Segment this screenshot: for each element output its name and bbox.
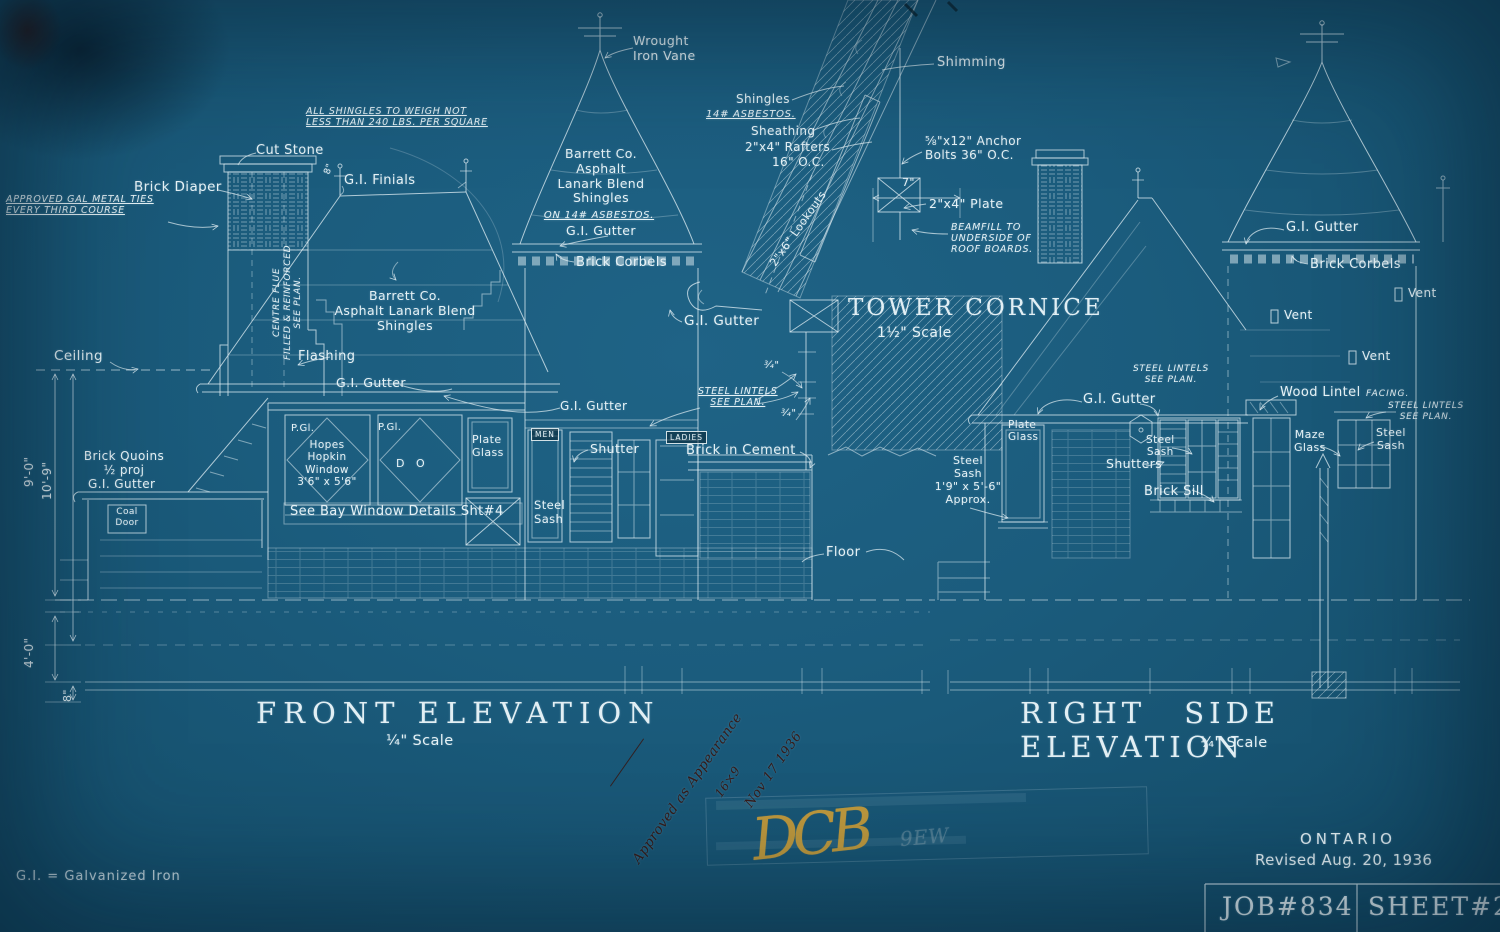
note-centre-flue: CENTRE FLUE FILLED & REINFORCED SEE PLAN… <box>272 245 304 360</box>
label-barrett-main: Barrett Co. Asphalt Lanark Blend Shingle… <box>315 289 495 333</box>
note-steel-lintels-right-a: STEEL LINTELS SEE PLAN. <box>1133 364 1209 385</box>
right-elevation-title: RIGHT SIDE ELEVATION <box>1020 696 1500 764</box>
title-block-job: JOB#834 <box>1222 892 1354 922</box>
label-brick-sill: Brick Sill <box>1144 484 1204 499</box>
label-steel-sash-men: Steel Sash <box>534 499 565 526</box>
note-on-asbestos: ON 14# ASBESTOS. <box>540 210 658 222</box>
label-gi-gutter-tower-right: G.I. Gutter <box>1286 220 1359 235</box>
label-shutters-right: Shutters <box>1106 457 1162 472</box>
title-block-sheet: SHEET#2 <box>1368 892 1500 922</box>
initials-faint: 9EW <box>899 824 950 852</box>
note-shingle-weight: ALL SHINGLES TO WEIGH NOT LESS THAN 240 … <box>306 106 488 128</box>
label-wrought-iron-vane: Wrought Iron Vane <box>633 34 696 64</box>
note-steel-lintels-right-b: STEEL LINTELS SEE PLAN. <box>1388 401 1464 422</box>
note-bay-window: See Bay Window Details Sht#4 <box>290 504 504 519</box>
label-pgl-2: P.Gl. <box>378 422 401 434</box>
label-vent-3: Vent <box>1362 349 1391 363</box>
label-shingles: Shingles <box>736 92 790 106</box>
dim-three-quarter-b: ¾" <box>781 408 797 420</box>
label-gi-gutter-main: G.I. Gutter <box>336 376 406 391</box>
dimension-lines <box>36 362 210 702</box>
label-vent-1: Vent <box>1408 286 1437 300</box>
label-ceiling: Ceiling <box>54 349 103 365</box>
dim-7in: 7" <box>902 177 915 190</box>
label-pgl-1: P.Gl. <box>291 423 314 435</box>
label-plate-glass-right: Plate Glass <box>1008 419 1038 444</box>
tower-cornice-scale: 1½" Scale <box>877 325 952 342</box>
legend-gi: G.I. = Galvanized Iron <box>16 869 181 884</box>
label-gi-gutter-right: G.I. Gutter <box>1083 392 1156 407</box>
note-steel-lintels-mid: STEEL LINTELS SEE PLAN. <box>698 386 778 408</box>
label-steel-sash-approx: Steel Sash 1'9" x 5'-6" Approx. <box>926 455 1010 507</box>
label-gi-finials: G.I. Finials <box>344 173 415 188</box>
label-ditto: D O <box>396 458 429 471</box>
label-gi-gutter-left: G.I. Gutter <box>88 477 155 491</box>
label-brick-corbels-right: Brick Corbels <box>1310 257 1401 272</box>
label-steel-sash-right-b: Steel Sash <box>1146 434 1175 459</box>
label-coal-door: Coal Door <box>110 507 144 528</box>
label-gi-gutter-cornice: G.I. Gutter <box>684 314 759 330</box>
label-shutter: Shutter <box>590 442 639 457</box>
label-anchor-bolts: ⅝"x12" Anchor Bolts 36" O.C. <box>925 134 1021 162</box>
title-block-revised: Revised Aug. 20, 1936 <box>1255 852 1432 870</box>
label-brick-quoins: Brick Quoins ½ proj <box>78 449 170 477</box>
label-maze-glass: Maze Glass <box>1294 429 1326 455</box>
note-metal-ties: APPROVED GAL METAL TIES EVERY THIRD COUR… <box>6 194 154 216</box>
dim-10ft9: 10'-9" <box>40 462 54 500</box>
label-facing: FACING. <box>1366 389 1409 400</box>
front-elevation-scale: ¼" Scale <box>386 733 454 750</box>
label-asbestos: 14# ASBESTOS. <box>706 109 796 121</box>
label-cut-stone: Cut Stone <box>256 143 324 158</box>
label-brick-corbels-front: Brick Corbels <box>576 255 667 270</box>
label-hopes-window: Hopes Hopkin Window 3'6" x 5'6" <box>288 439 366 489</box>
label-brick-in-cement: Brick in Cement <box>686 443 796 458</box>
label-beamfill: BEAMFILL TO UNDERSIDE OF ROOF BOARDS. <box>951 222 1033 256</box>
dim-three-quarter-a: ¾" <box>764 360 780 372</box>
tower-cornice-title: TOWER CORNICE <box>848 295 1104 322</box>
label-wood-lintel: Wood Lintel <box>1280 385 1361 400</box>
label-shimming: Shimming <box>937 55 1006 70</box>
label-sheathing: Sheathing <box>751 124 815 138</box>
men-sign: MEN <box>531 428 559 441</box>
dim-8in: 8" <box>62 689 75 702</box>
front-elevation-title: FRONT ELEVATION <box>256 696 661 730</box>
label-barrett-tower: Barrett Co. Asphalt Lanark Blend Shingle… <box>545 147 657 206</box>
label-plate-glass-front: Plate Glass <box>472 434 504 460</box>
label-gi-gutter-men: G.I. Gutter <box>560 399 627 413</box>
right-elevation-scale: ¼" Scale <box>1200 735 1268 752</box>
label-plate-2x4: 2"x4" Plate <box>929 197 1003 212</box>
label-gi-gutter-tower: G.I. Gutter <box>566 224 636 239</box>
dim-4ft: 4'-0" <box>22 638 36 668</box>
label-rafters: 2"x4" Rafters <box>745 140 830 154</box>
label-steel-sash-right-c: Steel Sash <box>1376 427 1406 453</box>
ink-smudge-corner <box>0 0 62 70</box>
title-block-region: ONTARIO <box>1300 831 1396 849</box>
label-floor: Floor <box>826 545 860 560</box>
dim-9ft: 9'-0" <box>22 457 36 487</box>
label-flashing: Flashing <box>298 349 355 364</box>
label-vent-2: Vent <box>1284 308 1313 322</box>
blueprint-sheet: Wrought Iron Vane Shimming Shingles 14# … <box>0 0 1500 932</box>
label-rafters-oc: 16" O.C. <box>772 155 825 169</box>
monogram-dcb: DCB <box>749 794 871 874</box>
